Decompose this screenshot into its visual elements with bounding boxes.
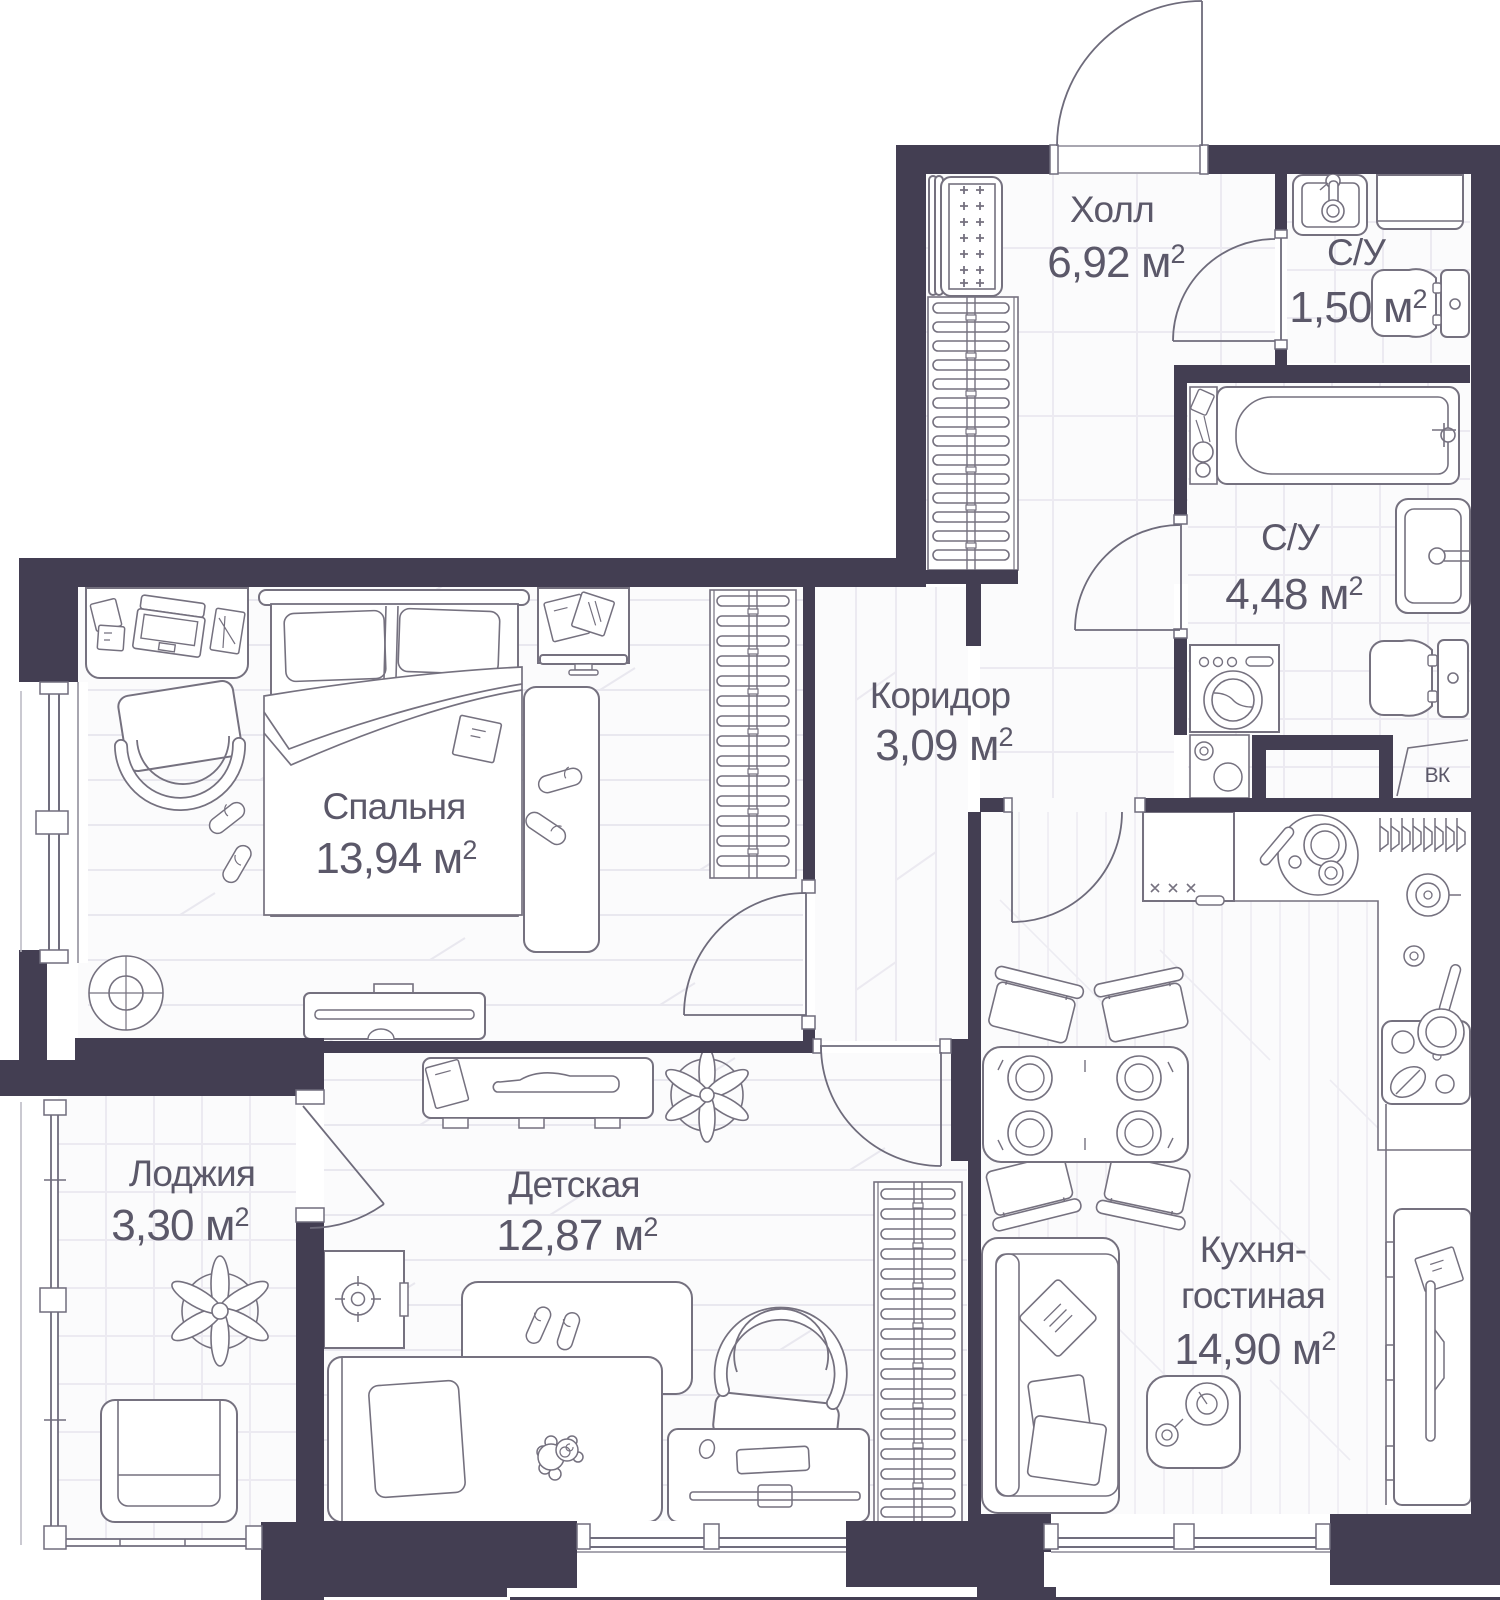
svg-text:С/У: С/У: [1327, 232, 1386, 273]
svg-text:Детская: Детская: [508, 1164, 639, 1205]
svg-text:13,94 м2: 13,94 м2: [315, 834, 476, 883]
svg-text:4,48 м2: 4,48 м2: [1225, 570, 1363, 619]
svg-text:12,87 м2: 12,87 м2: [496, 1211, 657, 1260]
svg-text:Лоджия: Лоджия: [129, 1153, 255, 1194]
svg-text:3,30 м2: 3,30 м2: [111, 1201, 249, 1250]
svg-text:ВК: ВК: [1425, 764, 1451, 787]
svg-text:гостиная: гостиная: [1181, 1275, 1325, 1316]
svg-text:6,92 м2: 6,92 м2: [1047, 238, 1185, 287]
svg-text:Холл: Холл: [1070, 189, 1154, 230]
svg-text:1,50 м2: 1,50 м2: [1289, 283, 1427, 332]
svg-text:Кухня-: Кухня-: [1200, 1229, 1307, 1270]
svg-text:С/У: С/У: [1261, 517, 1320, 558]
svg-text:Коридор: Коридор: [870, 675, 1011, 716]
svg-text:14,90 м2: 14,90 м2: [1174, 1325, 1335, 1374]
svg-text:3,09 м2: 3,09 м2: [875, 721, 1013, 770]
svg-text:Спальня: Спальня: [322, 786, 465, 827]
